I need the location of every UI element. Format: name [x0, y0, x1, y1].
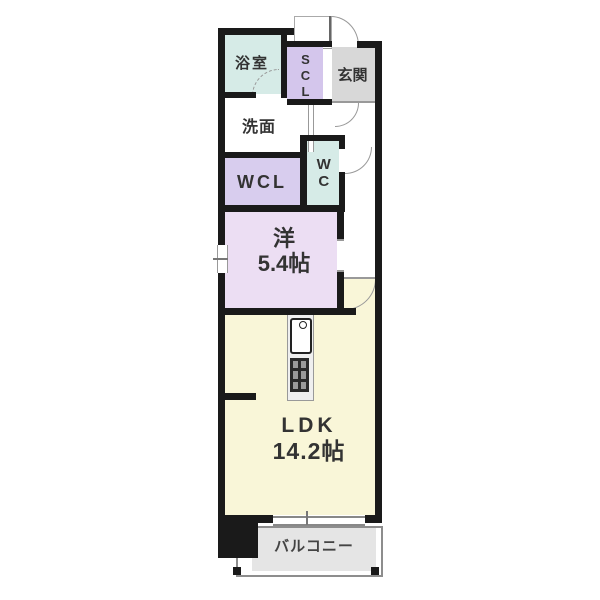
washroom-door [308, 103, 314, 152]
shoe-closet-label: SCL [297, 51, 312, 101]
western-room-size: 5.4帖 [232, 251, 336, 276]
kitchen-stove-icon [290, 358, 309, 392]
ldk-name: LDK [240, 414, 378, 438]
wall-toilet-right-upper [339, 135, 345, 149]
wall-western-right-upper [337, 205, 344, 239]
floorplan-canvas: 浴室 SCL 玄関 洗面 WCL WC 洋 5.4帖 LDK 14.2帖 バルコ… [0, 0, 600, 600]
ldk-size: 14.2帖 [240, 438, 378, 464]
walk-in-closet-label: WCL [226, 172, 298, 193]
wall-ldk-bottom-right [365, 515, 382, 523]
toilet-label: WC [315, 147, 332, 199]
wall-left [218, 28, 225, 522]
hall-door-arc-icon [335, 103, 359, 127]
western-room-name: 洋 [232, 226, 336, 251]
stove-burner [293, 371, 298, 378]
wall-wcl-toilet-divider [300, 141, 307, 212]
kitchen-faucet-icon [299, 321, 307, 329]
wall-western-bottom [222, 308, 356, 315]
wall-bathroom-right [281, 28, 287, 98]
balcony-post-right [371, 567, 379, 575]
stove-burner [301, 361, 306, 368]
toilet-door-arc-icon [345, 147, 372, 174]
window-tick [213, 258, 228, 260]
wall-bathroom-bottom [222, 92, 256, 98]
entrance-door-arc-icon [331, 16, 359, 46]
stove-burner [301, 371, 306, 378]
entrance-label: 玄関 [330, 67, 375, 84]
stove-burner [301, 382, 306, 389]
western-room-label: 洋 5.4帖 [232, 226, 336, 277]
ldk-label: LDK 14.2帖 [240, 414, 378, 465]
bathroom-label: 浴室 [224, 55, 280, 72]
stove-burner [293, 361, 298, 368]
stove-burner [293, 382, 298, 389]
western-room-door [337, 239, 344, 272]
washroom-label: 洗面 [226, 119, 292, 137]
window-tick [306, 511, 308, 525]
balcony-label: バルコニー [250, 538, 378, 555]
balcony-post-left [233, 567, 241, 575]
wall-ldk-stub [222, 393, 256, 400]
wall-western-top [222, 205, 343, 212]
balcony-sliding-window [273, 516, 365, 526]
wall-scl-top [287, 41, 332, 47]
wall-washroom-bottom [222, 152, 307, 158]
entry-alcove [294, 16, 332, 44]
